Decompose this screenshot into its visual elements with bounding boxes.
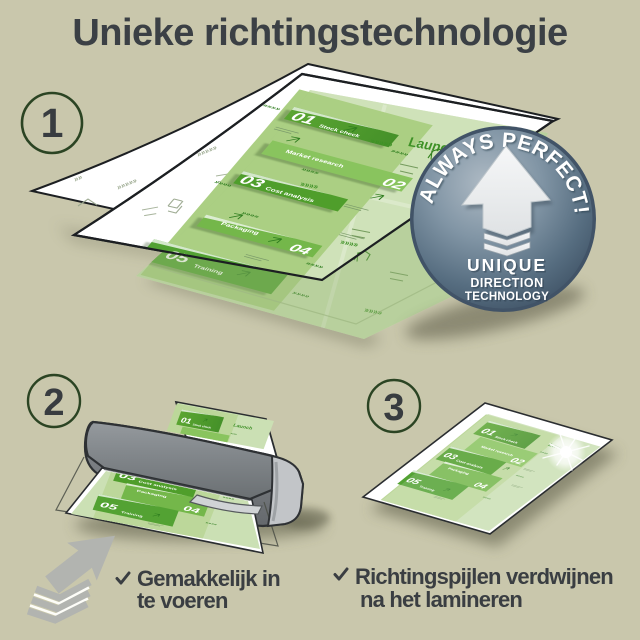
- svg-text:2: 2: [43, 382, 64, 424]
- svg-text:3: 3: [383, 387, 404, 429]
- svg-text:Unieke richtingstechnologie: Unieke richtingstechnologie: [72, 12, 567, 54]
- svg-text:1: 1: [41, 100, 64, 146]
- svg-text:na het lamineren: na het lamineren: [360, 587, 522, 612]
- svg-text:te voeren: te voeren: [137, 588, 228, 613]
- svg-text:DIRECTION: DIRECTION: [470, 276, 543, 290]
- svg-text:Richtingspijlen verdwijnen: Richtingspijlen verdwijnen: [355, 564, 613, 589]
- svg-text:UNIQUE: UNIQUE: [467, 255, 547, 275]
- svg-text:TECHNOLOGY: TECHNOLOGY: [465, 291, 549, 303]
